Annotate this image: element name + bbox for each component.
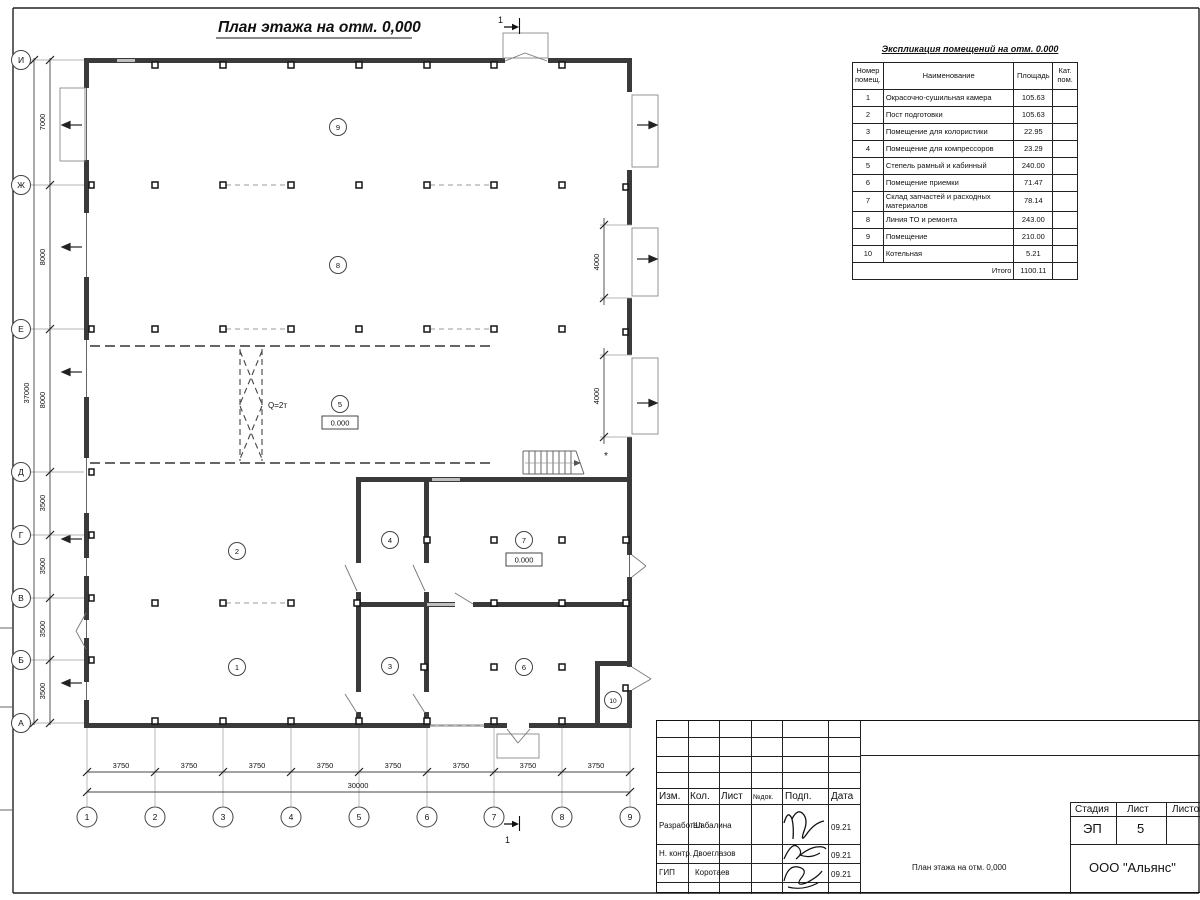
explication-row: 9Помещение210.00 [853, 229, 1078, 246]
room-number-cell: 1 [853, 90, 884, 107]
signature-gip [778, 859, 830, 893]
room-number-cell: 9 [853, 229, 884, 246]
svg-text:А: А [18, 718, 24, 728]
room-marker: 9 [330, 119, 347, 136]
room-number-cell: 10 [853, 246, 884, 263]
axis-bubble: В [12, 589, 31, 608]
svg-text:Ж: Ж [17, 180, 25, 190]
page-title: План этажа на отм. 0,000 [218, 19, 421, 36]
room-marker: 4 [382, 532, 399, 549]
svg-text:4: 4 [289, 812, 294, 822]
explication-title: Экспликация помещений на отм. 0.000 [852, 44, 1088, 54]
svg-text:1: 1 [505, 835, 510, 845]
total-label: Итого [853, 263, 1014, 280]
room-name-cell: Линия ТО и ремонта [883, 212, 1014, 229]
svg-text:2: 2 [235, 547, 239, 556]
room-name-cell: Склад запчастей и расходных материалов [883, 192, 1014, 212]
room-number-cell: 3 [853, 124, 884, 141]
svg-text:7: 7 [522, 536, 526, 545]
crane-zone: Q=2т [90, 346, 493, 463]
svg-text:3: 3 [221, 812, 226, 822]
svg-text:Г: Г [19, 530, 24, 540]
total-value: 1100.11 [1014, 263, 1053, 280]
role-ncontrol: Н. контр. [659, 849, 692, 858]
svg-text:3750: 3750 [385, 761, 402, 770]
room-cat-cell [1053, 175, 1078, 192]
right-exit-arrow [637, 122, 657, 129]
row-axes: 7000 8000 8000 3500 3500 3500 3500 37000… [12, 51, 85, 733]
svg-text:9: 9 [336, 123, 340, 132]
svg-text:3500: 3500 [38, 621, 47, 638]
svg-text:8000: 8000 [38, 249, 47, 266]
room-area-cell: 5.21 [1014, 246, 1053, 263]
axis-bubble: 4 [281, 807, 301, 827]
svg-text:30000: 30000 [348, 781, 369, 790]
axis-bubble: Б [12, 651, 31, 670]
svg-text:9: 9 [628, 812, 633, 822]
room-cat-cell [1053, 107, 1078, 124]
svg-text:Б: Б [18, 655, 24, 665]
stage-value: ЭП [1083, 821, 1102, 836]
svg-text:0.000: 0.000 [515, 556, 534, 565]
room-area-cell: 243.00 [1014, 212, 1053, 229]
room-marker: 2 [229, 543, 246, 560]
svg-text:8: 8 [560, 812, 565, 822]
room-marker: 7 [516, 532, 533, 549]
explication-row: 8Линия ТО и ремонта243.00 [853, 212, 1078, 229]
room-name-cell: Окрасочно-сушильная камера [883, 90, 1014, 107]
col-kol: Кол. [690, 791, 710, 802]
axis-bubble: 6 [417, 807, 437, 827]
room-marker: 6 [516, 659, 533, 676]
svg-text:3750: 3750 [113, 761, 130, 770]
left-exit-arrow [62, 536, 82, 543]
col-podp: Подп. [785, 791, 812, 802]
explication-row: 2Пост подготовки105.63 [853, 107, 1078, 124]
elevation-mark: 0.000 [322, 416, 358, 429]
left-exit-arrow [62, 680, 82, 687]
svg-text:1: 1 [85, 812, 90, 822]
date-ncontrol: 09.21 [831, 851, 851, 860]
svg-text:3: 3 [388, 662, 392, 671]
explication-row: 5Степель рамный и кабинный240.00 [853, 158, 1078, 175]
stairs: * [523, 451, 608, 474]
svg-text:4: 4 [388, 536, 392, 545]
explication-table: Номер помещ.НаименованиеПлощадьКат. пом.… [852, 62, 1078, 280]
explication-header: Номер помещ. [853, 63, 884, 90]
svg-text:3750: 3750 [588, 761, 605, 770]
room-marker: 3 [382, 658, 399, 675]
room-area-cell: 210.00 [1014, 229, 1053, 246]
crane-capacity-label: Q=2т [268, 401, 287, 410]
room-number-cell: 7 [853, 192, 884, 212]
svg-text:0.000: 0.000 [331, 419, 350, 428]
svg-text:3750: 3750 [317, 761, 334, 770]
room-area-cell: 23.29 [1014, 141, 1053, 158]
axis-bubble: 7 [484, 807, 504, 827]
room-area-cell: 22.95 [1014, 124, 1053, 141]
svg-text:3500: 3500 [38, 683, 47, 700]
room-area-cell: 105.63 [1014, 107, 1053, 124]
explication-row: 6Помещение приемки71.47 [853, 175, 1078, 192]
explication-header: Кат. пом. [1053, 63, 1078, 90]
explication-header: Наименование [883, 63, 1014, 90]
room-name-cell: Помещение для компрессоров [883, 141, 1014, 158]
svg-text:3750: 3750 [181, 761, 198, 770]
axis-bubble: Д [12, 463, 31, 482]
room-number-cell: 6 [853, 175, 884, 192]
section-mark-bottom: 1 [504, 816, 520, 845]
room-cat-cell [1053, 124, 1078, 141]
svg-text:И: И [18, 55, 24, 65]
right-exit-arrow [637, 400, 657, 407]
svg-text:8: 8 [336, 261, 340, 270]
axis-bubble: 5 [349, 807, 369, 827]
svg-text:6: 6 [522, 663, 526, 672]
section-mark-top: 1 [498, 15, 520, 34]
interior-walls [345, 477, 632, 728]
axis-bubble: 1 [77, 807, 97, 827]
column-axes: 3750 3750 3750 3750 3750 3750 3750 3750 … [77, 728, 640, 827]
svg-text:37000: 37000 [22, 383, 31, 404]
room-marker: 1 [229, 659, 246, 676]
room-number-cell: 2 [853, 107, 884, 124]
room-cat-cell [1053, 192, 1078, 212]
svg-text:Д: Д [18, 467, 24, 477]
room-cat-cell [1053, 141, 1078, 158]
name-developer: Шабалина [693, 821, 732, 830]
axis-bubble: 8 [552, 807, 572, 827]
svg-text:1: 1 [498, 15, 503, 25]
document-title: План этажа на отм. 0,000 [912, 863, 1006, 872]
room-name-cell: Котельная [883, 246, 1014, 263]
title-block: Изм. Кол. Лист №док. Подп. Дата Разработ… [656, 720, 1200, 893]
room-name-cell: Помещение для колористики [883, 124, 1014, 141]
right-exit-arrow [637, 256, 657, 263]
svg-text:4000: 4000 [592, 254, 601, 271]
drawing-sheet: { "sheet": { "title": "План этажа на отм… [0, 0, 1200, 900]
room-name-cell: Степель рамный и кабинный [883, 158, 1014, 175]
elevation-mark: 0.000 [506, 553, 542, 566]
axis-bubble: Е [12, 320, 31, 339]
room-area-cell: 105.63 [1014, 90, 1053, 107]
room-cat-cell [1053, 158, 1078, 175]
svg-text:3500: 3500 [38, 558, 47, 575]
explication-row: 1Окрасочно-сушильная камера105.63 [853, 90, 1078, 107]
left-exit-arrow [62, 244, 82, 251]
axis-bubble: Г [12, 526, 31, 545]
axis-bubble: Ж [12, 176, 31, 195]
room-cat-cell [1053, 246, 1078, 263]
svg-text:2: 2 [153, 812, 158, 822]
axis-bubble: 9 [620, 807, 640, 827]
axis-bubble: А [12, 714, 31, 733]
axis-bubble: 2 [145, 807, 165, 827]
room-number-cell: 8 [853, 212, 884, 229]
col-izm: Изм. [659, 791, 680, 802]
room-cat-cell [1053, 212, 1078, 229]
date-developer: 09.21 [831, 823, 851, 832]
left-exit-arrow [62, 369, 82, 376]
svg-text:1: 1 [235, 663, 239, 672]
room-name-cell: Пост подготовки [883, 107, 1014, 124]
svg-text:7000: 7000 [38, 114, 47, 131]
explication-header: Площадь [1014, 63, 1053, 90]
svg-text:Е: Е [18, 324, 24, 334]
col-list: Лист [721, 791, 743, 802]
svg-text:4000: 4000 [592, 388, 601, 405]
col-data: Дата [831, 791, 853, 802]
room-marker: 8 [330, 257, 347, 274]
svg-text:5: 5 [338, 400, 342, 409]
sheets-label: Листов [1172, 804, 1200, 815]
svg-text:7: 7 [492, 812, 497, 822]
room-area-cell: 78.14 [1014, 192, 1053, 212]
svg-text:3750: 3750 [249, 761, 266, 770]
name-ncontrol: Двоеглазов [693, 849, 736, 858]
svg-text:В: В [18, 593, 24, 603]
explication-total-row: Итого 1100.11 [853, 263, 1078, 280]
left-exit-arrow [62, 122, 82, 129]
role-gip: ГИП [659, 868, 675, 877]
axis-bubble: 3 [213, 807, 233, 827]
room-marker: 10 [605, 692, 622, 709]
svg-text:8000: 8000 [38, 392, 47, 409]
svg-text:3500: 3500 [38, 495, 47, 512]
explication-row: 10Котельная5.21 [853, 246, 1078, 263]
room-name-cell: Помещение приемки [883, 175, 1014, 192]
room-cat-cell [1053, 229, 1078, 246]
room-cat-cell [1053, 90, 1078, 107]
axis-bubble: И [12, 51, 31, 70]
col-dok: №док. [753, 794, 774, 801]
room-area-cell: 71.47 [1014, 175, 1053, 192]
stairs-asterisk: * [604, 451, 608, 462]
explication-row: 3Помещение для колористики22.95 [853, 124, 1078, 141]
explication-table-block: Экспликация помещений на отм. 0.000 Номе… [852, 44, 1088, 280]
room-number-cell: 5 [853, 158, 884, 175]
stage-label: Стадия [1075, 804, 1109, 815]
svg-text:3750: 3750 [520, 761, 537, 770]
svg-text:10: 10 [609, 698, 617, 705]
date-gip: 09.21 [831, 870, 851, 879]
room-marker: 5 [332, 396, 349, 413]
explication-row: 7Склад запчастей и расходных материалов7… [853, 192, 1078, 212]
sheet-label: Лист [1127, 804, 1149, 815]
svg-text:5: 5 [357, 812, 362, 822]
company-name: ООО "Альянс" [1089, 860, 1176, 875]
room-name-cell: Помещение [883, 229, 1014, 246]
explication-row: 4Помещение для компрессоров23.29 [853, 141, 1078, 158]
room-area-cell: 240.00 [1014, 158, 1053, 175]
sheet-number: 5 [1137, 821, 1144, 836]
svg-text:6: 6 [425, 812, 430, 822]
name-gip: Коротаев [695, 868, 730, 877]
svg-text:3750: 3750 [453, 761, 470, 770]
drawing-title: План этажа на отм. 0,000 [216, 19, 421, 38]
room-number-cell: 4 [853, 141, 884, 158]
